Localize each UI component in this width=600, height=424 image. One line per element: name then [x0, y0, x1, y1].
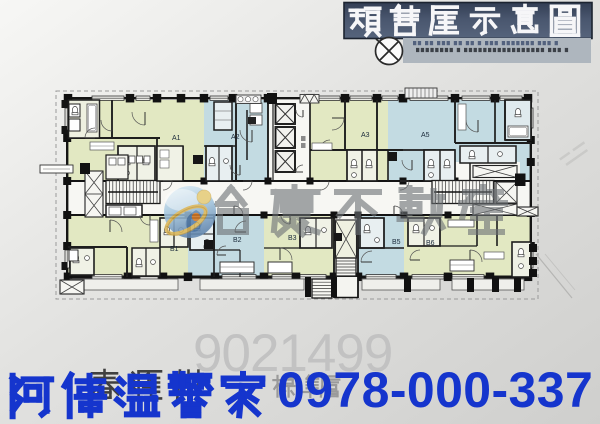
svg-text:B1: B1	[170, 246, 179, 253]
svg-text:0978-000-337: 0978-000-337	[277, 362, 593, 418]
svg-text:B2: B2	[233, 237, 242, 244]
svg-text:B6: B6	[426, 240, 435, 247]
svg-text:B3: B3	[288, 235, 297, 242]
svg-text:A1: A1	[172, 135, 181, 142]
svg-text:B5: B5	[392, 239, 401, 246]
svg-text:A2: A2	[231, 134, 240, 141]
svg-text:A5: A5	[421, 132, 430, 139]
svg-text:A3: A3	[361, 132, 370, 139]
